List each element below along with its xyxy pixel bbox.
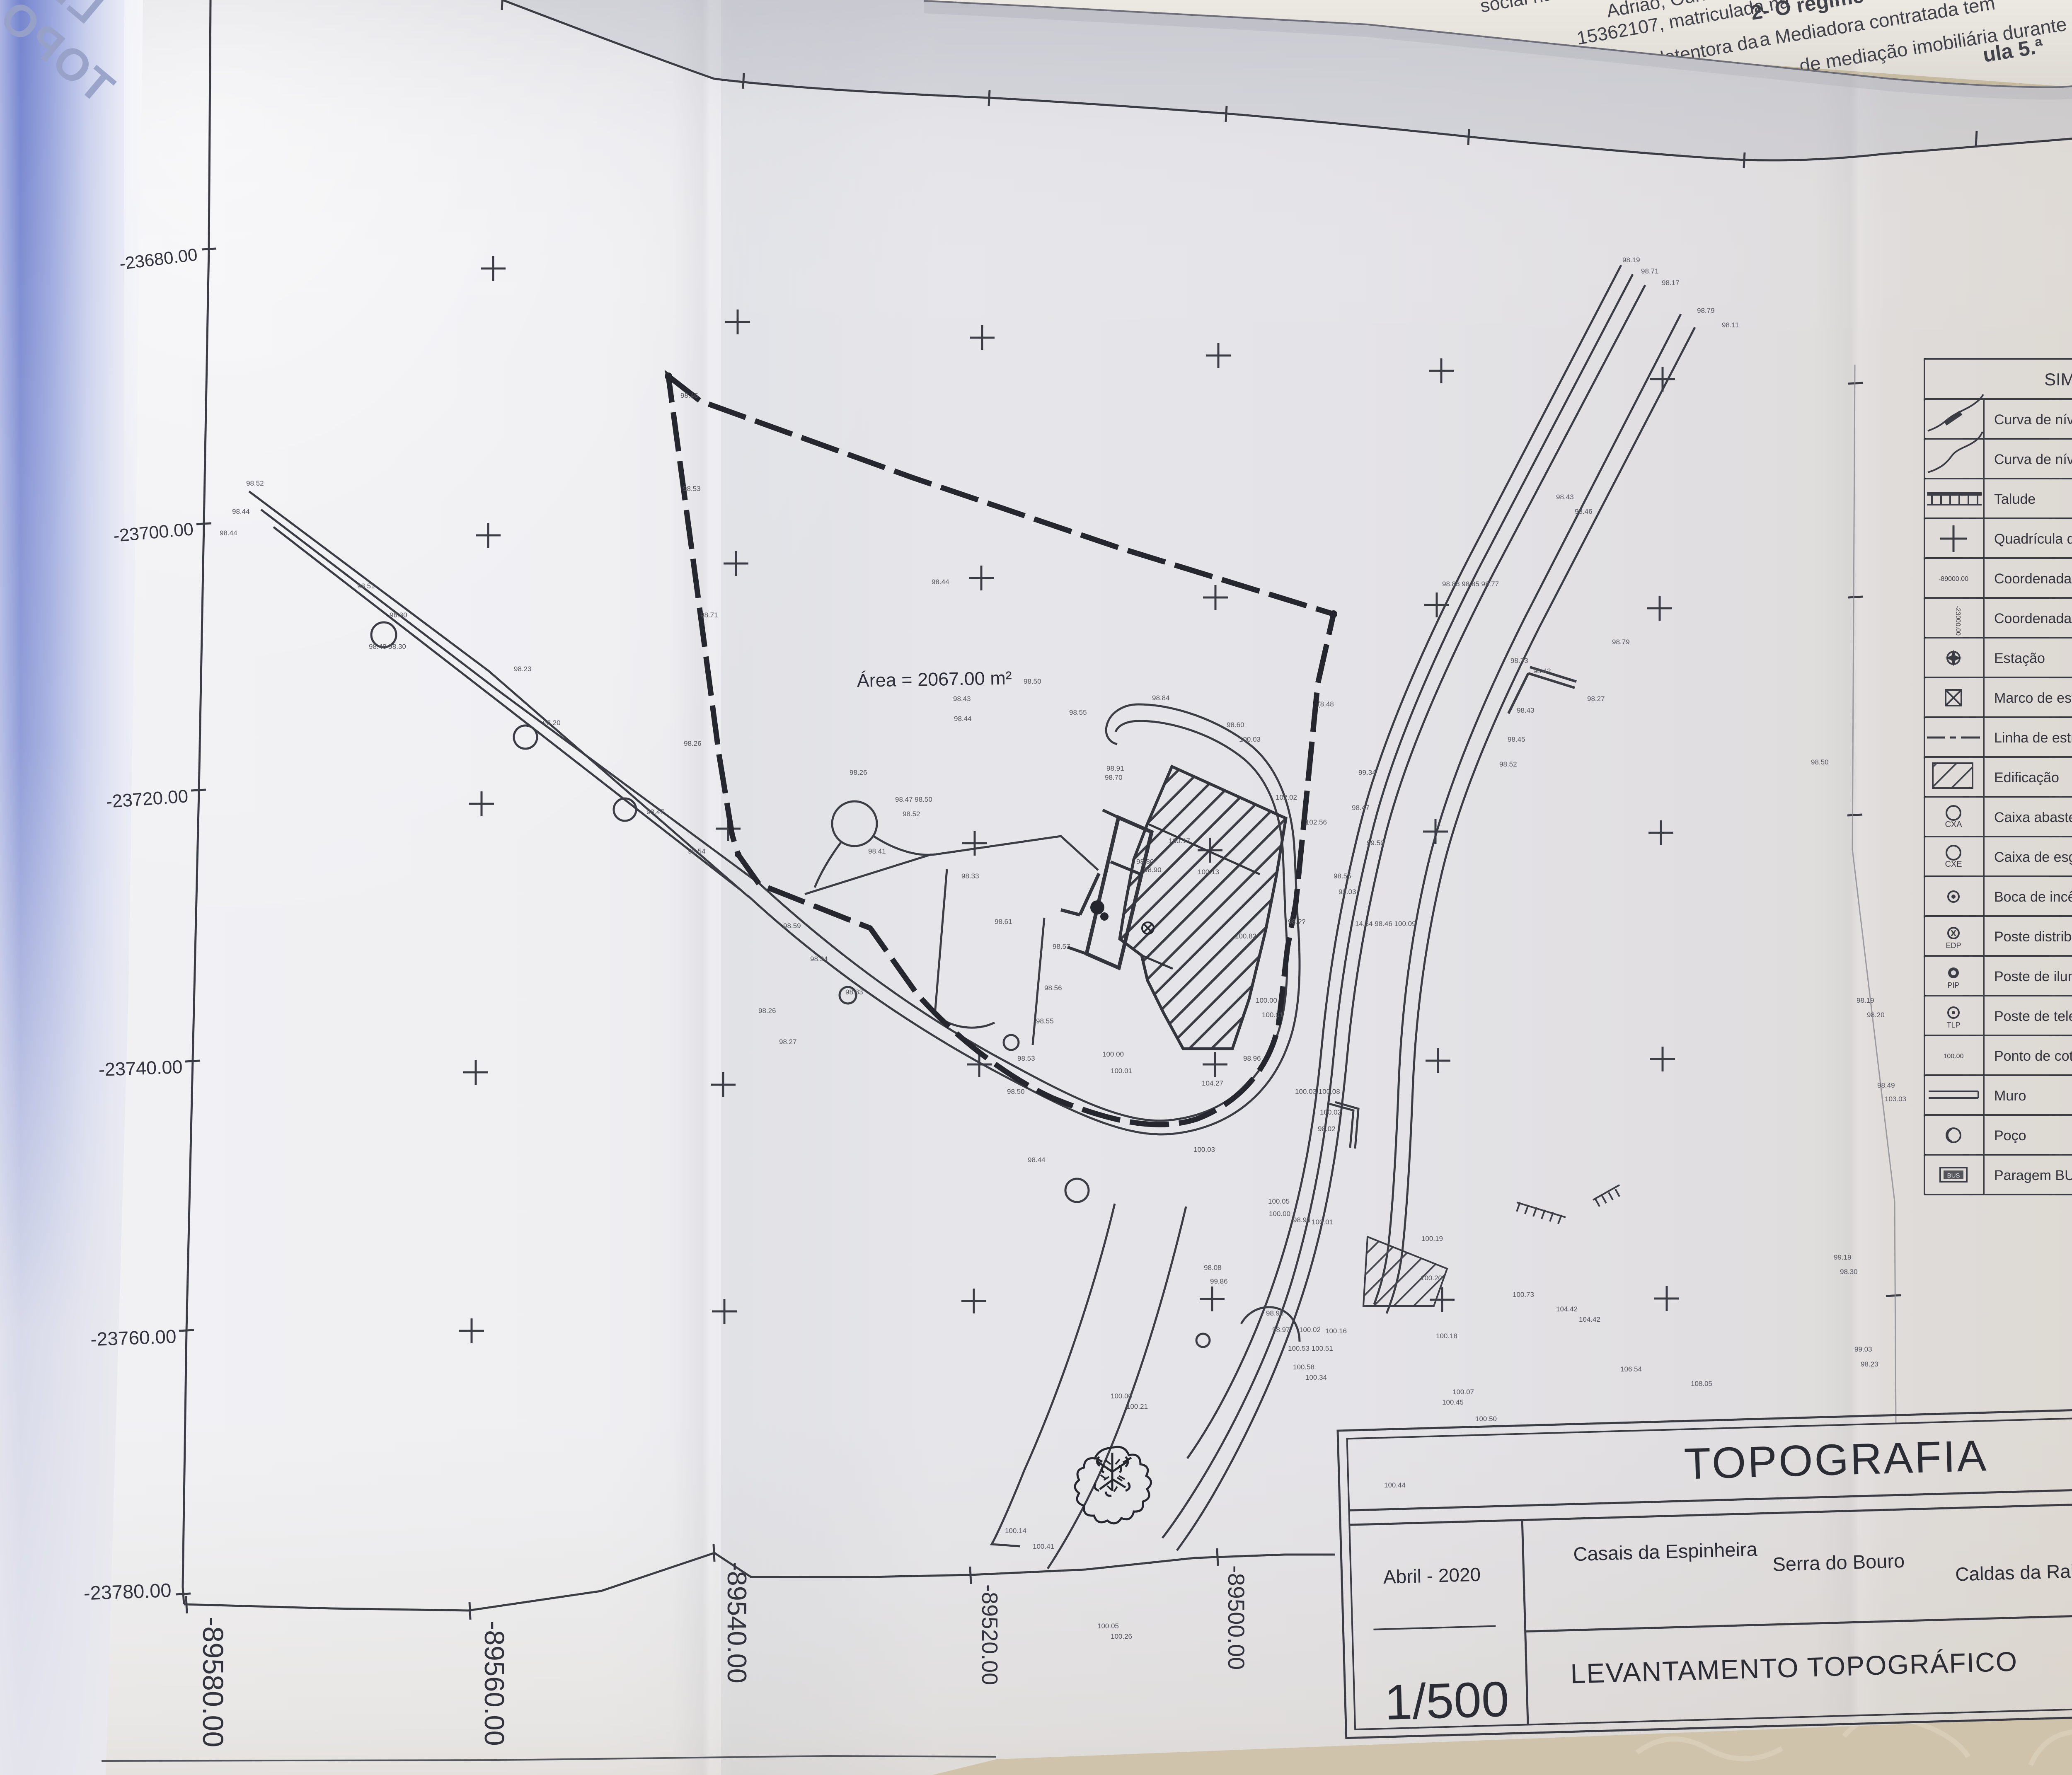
svg-text:98.43: 98.43 xyxy=(953,695,971,703)
svg-text:98.02: 98.02 xyxy=(1318,1125,1336,1133)
svg-text:100.26: 100.26 xyxy=(1111,1632,1132,1640)
svg-text:98.41: 98.41 xyxy=(868,847,886,855)
svg-text:98.43: 98.43 xyxy=(1517,706,1535,714)
svg-text:Muro: Muro xyxy=(1994,1088,2026,1104)
svg-text:CXE: CXE xyxy=(1945,860,1962,869)
svg-text:98.61: 98.61 xyxy=(995,918,1012,926)
svg-text:100.44: 100.44 xyxy=(1384,1481,1406,1489)
svg-text:-89000.00: -89000.00 xyxy=(1939,576,1968,583)
svg-text:Caldas da Rainha: Caldas da Rainha xyxy=(1955,1559,2072,1585)
svg-text:100.50: 100.50 xyxy=(1475,1415,1497,1423)
svg-text:Poste de iluminação: Poste de iluminação xyxy=(1994,969,2072,984)
svg-text:98.79: 98.79 xyxy=(1612,638,1630,646)
svg-text:104.42: 104.42 xyxy=(1556,1305,1578,1313)
svg-text:Curva de nível mestra com cota: Curva de nível mestra com cota xyxy=(1994,412,2072,428)
svg-text:98.33: 98.33 xyxy=(961,872,979,880)
svg-text:100.14: 100.14 xyxy=(1005,1527,1026,1535)
svg-text:-89560.00: -89560.00 xyxy=(479,1621,510,1746)
svg-text:Boca de incêndio: Boca de incêndio xyxy=(1994,889,2072,905)
svg-text:98.60: 98.60 xyxy=(1227,721,1244,729)
svg-text:100.34: 100.34 xyxy=(1305,1374,1327,1381)
svg-text:Paragem BUS: Paragem BUS xyxy=(1994,1168,2072,1183)
svg-text:98.83 98.85 98.77: 98.83 98.85 98.77 xyxy=(1442,580,1499,588)
svg-text:98.96: 98.96 xyxy=(1243,1054,1261,1062)
svg-text:100.73: 100.73 xyxy=(1513,1291,1534,1299)
svg-text:98.??: 98.?? xyxy=(1288,918,1306,926)
svg-text:99.19: 99.19 xyxy=(1834,1253,1852,1261)
svg-text:99.50: 99.50 xyxy=(1367,839,1385,847)
svg-text:(8.48: (8.48 xyxy=(1318,700,1334,708)
svg-text:PIP: PIP xyxy=(1947,981,1959,989)
svg-text:98.51: 98.51 xyxy=(357,582,375,590)
svg-text:104.27: 104.27 xyxy=(1202,1079,1223,1087)
svg-text:Edificação: Edificação xyxy=(1994,770,2059,786)
svg-text:98.44: 98.44 xyxy=(932,578,949,586)
svg-text:100.01: 100.01 xyxy=(1111,1067,1132,1075)
svg-text:EDP: EDP xyxy=(1946,941,1961,950)
svg-text:98.73: 98.73 xyxy=(1510,657,1528,665)
svg-text:98.45: 98.45 xyxy=(1508,735,1525,743)
svg-text:-89540.00: -89540.00 xyxy=(722,1562,752,1683)
svg-text:98.55: 98.55 xyxy=(1069,709,1087,716)
svg-text:98.47 98.50: 98.47 98.50 xyxy=(895,796,932,803)
svg-text:98.44: 98.44 xyxy=(232,508,250,515)
svg-text:98.47: 98.47 xyxy=(646,808,664,816)
svg-text:98.27: 98.27 xyxy=(1587,695,1605,703)
svg-text:1/500: 1/500 xyxy=(1384,1671,1510,1730)
svg-text:102.02: 102.02 xyxy=(1276,793,1297,801)
svg-text:98.79: 98.79 xyxy=(1697,307,1715,314)
svg-text:99.03: 99.03 xyxy=(1854,1345,1872,1353)
svg-text:98.44: 98.44 xyxy=(1028,1156,1046,1164)
svg-text:100.00: 100.00 xyxy=(1102,1050,1124,1058)
svg-text:99.86: 99.86 xyxy=(1210,1277,1228,1285)
svg-text:98.47: 98.47 xyxy=(1352,804,1370,812)
svg-text:99.03: 99.03 xyxy=(1339,888,1356,896)
svg-text:Marco de estrema de propriedad: Marco de estrema de propriedade xyxy=(1994,690,2072,706)
svg-text:100.20: 100.20 xyxy=(1421,1274,1442,1282)
svg-text:100.07: 100.07 xyxy=(1452,1388,1474,1396)
svg-text:98.70: 98.70 xyxy=(1105,774,1123,781)
svg-text:98.55: 98.55 xyxy=(1036,1017,1054,1025)
svg-text:100.17: 100.17 xyxy=(1169,837,1190,845)
svg-text:-23000.00: -23000.00 xyxy=(1954,606,1961,636)
svg-text:98.54: 98.54 xyxy=(688,847,706,855)
svg-text:98.20: 98.20 xyxy=(543,719,561,727)
svg-text:100.00: 100.00 xyxy=(1269,1210,1290,1218)
svg-text:98.84: 98.84 xyxy=(1152,694,1170,702)
svg-text:98.57: 98.57 xyxy=(1053,943,1070,950)
svg-text:98.56: 98.56 xyxy=(1044,984,1062,992)
svg-text:100.05: 100.05 xyxy=(1097,1622,1119,1630)
svg-text:103.03: 103.03 xyxy=(1885,1095,1906,1103)
svg-text:98.53: 98.53 xyxy=(683,485,701,493)
svg-text:98.33: 98.33 xyxy=(845,988,863,996)
svg-text:100.01: 100.01 xyxy=(1262,1011,1283,1019)
svg-text:98.23: 98.23 xyxy=(1861,1360,1878,1368)
svg-text:98.46: 98.46 xyxy=(680,392,698,399)
svg-text:100.19: 100.19 xyxy=(1421,1235,1443,1243)
svg-text:98.30: 98.30 xyxy=(1840,1268,1858,1276)
svg-text:98.19: 98.19 xyxy=(1622,256,1640,264)
svg-text:98.49: 98.49 xyxy=(1877,1081,1895,1089)
svg-text:98.71: 98.71 xyxy=(700,611,718,619)
svg-text:100.16: 100.16 xyxy=(1325,1327,1347,1335)
svg-text:Caixa de esgoto doméstico: Caixa de esgoto doméstico xyxy=(1994,849,2072,865)
svg-text:98.53: 98.53 xyxy=(1017,1054,1035,1062)
svg-text:98.30: 98.30 xyxy=(390,611,407,619)
svg-text:99.34: 99.34 xyxy=(1358,769,1376,776)
svg-text:100.00: 100.00 xyxy=(1256,996,1277,1004)
svg-text:Linha de estrema: Linha de estrema xyxy=(1994,730,2072,746)
svg-text:Poste de telecomunicações: Poste de telecomunicações xyxy=(1994,1008,2072,1024)
svg-text:100.02: 100.02 xyxy=(1299,1326,1321,1334)
svg-text:-89520.00: -89520.00 xyxy=(977,1584,1002,1685)
svg-text:98.97: 98.97 xyxy=(1272,1326,1290,1334)
svg-text:98.44: 98.44 xyxy=(220,529,237,537)
svg-text:-23740.00: -23740.00 xyxy=(98,1056,183,1080)
svg-text:98.20: 98.20 xyxy=(1867,1011,1885,1019)
svg-text:Quadrícula de coordenação: Quadrícula de coordenação xyxy=(1994,531,2072,547)
svg-text:98.23: 98.23 xyxy=(514,665,532,673)
svg-text:100.58: 100.58 xyxy=(1293,1363,1314,1371)
svg-text:98.27: 98.27 xyxy=(779,1038,797,1046)
svg-text:-23780.00: -23780.00 xyxy=(83,1579,172,1604)
svg-text:98.40 98.30: 98.40 98.30 xyxy=(369,643,406,651)
svg-text:98.46: 98.46 xyxy=(1575,508,1593,515)
svg-text:Curva de nível secundária: Curva de nível secundária xyxy=(1994,452,2072,467)
svg-text:98.80: 98.80 xyxy=(1136,858,1154,866)
svg-text:Poço: Poço xyxy=(1994,1128,2026,1144)
svg-text:98.42: 98.42 xyxy=(1533,667,1551,675)
svg-text:98.26: 98.26 xyxy=(850,769,867,776)
svg-text:98.91: 98.91 xyxy=(1106,764,1124,772)
svg-text:100.05: 100.05 xyxy=(1268,1197,1290,1205)
svg-text:100.03 100.08: 100.03 100.08 xyxy=(1295,1088,1340,1095)
svg-text:-23760.00: -23760.00 xyxy=(90,1325,177,1350)
svg-text:Poste distribuição EDP: Poste distribuição EDP xyxy=(1994,929,2072,945)
svg-text:14.34 98.46 100.09: 14.34 98.46 100.09 xyxy=(1355,920,1416,928)
svg-text:Abril - 2020: Abril - 2020 xyxy=(1383,1564,1481,1588)
svg-text:98.26: 98.26 xyxy=(684,740,702,747)
svg-text:Coordenada m: Coordenada m xyxy=(1994,611,2072,626)
svg-text:98.71: 98.71 xyxy=(1641,267,1659,275)
svg-text:CXA: CXA xyxy=(1945,820,1962,829)
svg-text:TLP: TLP xyxy=(1946,1021,1960,1029)
svg-text:100.18: 100.18 xyxy=(1436,1332,1457,1340)
svg-text:98.94: 98.94 xyxy=(1293,1216,1311,1224)
svg-text:Coordenada p: Coordenada p xyxy=(1994,571,2072,587)
svg-text:98.50: 98.50 xyxy=(1024,677,1041,685)
svg-text:98.50: 98.50 xyxy=(1811,758,1829,766)
svg-text:Talude: Talude xyxy=(1994,491,2036,507)
svg-text:-89580.00: -89580.00 xyxy=(197,1617,229,1747)
svg-text:SIMBOLOGIA: SIMBOLOGIA xyxy=(2044,370,2072,389)
svg-text:100.53 100.51: 100.53 100.51 xyxy=(1288,1345,1333,1352)
svg-text:100.45: 100.45 xyxy=(1442,1398,1464,1406)
svg-text:108.05: 108.05 xyxy=(1691,1380,1712,1388)
svg-text:100.02: 100.02 xyxy=(1320,1108,1341,1116)
svg-text:BUS: BUS xyxy=(1947,1172,1960,1179)
svg-text:98.26: 98.26 xyxy=(758,1007,776,1015)
svg-text:98.59: 98.59 xyxy=(783,922,801,930)
svg-text:100.03: 100.03 xyxy=(1193,1146,1215,1154)
svg-text:Caixa abastecimento de água: Caixa abastecimento de água xyxy=(1994,810,2072,825)
svg-text:98.08: 98.08 xyxy=(1204,1264,1222,1272)
svg-text:98.52: 98.52 xyxy=(903,810,920,818)
svg-text:Área = 2067.00 m²: Área = 2067.00 m² xyxy=(857,667,1012,691)
svg-text:98.43: 98.43 xyxy=(1556,493,1574,501)
svg-text:100.41: 100.41 xyxy=(1033,1543,1054,1550)
svg-text:100.82: 100.82 xyxy=(1235,932,1256,940)
svg-text:104.42: 104.42 xyxy=(1579,1316,1600,1323)
svg-text:98.50: 98.50 xyxy=(1007,1088,1025,1095)
svg-text:100.21: 100.21 xyxy=(1126,1403,1148,1410)
svg-text:98.11: 98.11 xyxy=(1722,321,1739,329)
svg-text:98.19: 98.19 xyxy=(1857,996,1874,1004)
svg-text:Ponto de cota: Ponto de cota xyxy=(1994,1048,2072,1064)
svg-text:Serra do Bouro: Serra do Bouro xyxy=(1772,1550,1905,1575)
svg-text:100.00: 100.00 xyxy=(1944,1053,1964,1060)
svg-text:100.13: 100.13 xyxy=(1198,868,1219,876)
svg-text:TOPOGRAFIA: TOPOGRAFIA xyxy=(1683,1431,1988,1488)
svg-text:100.00: 100.00 xyxy=(1111,1392,1132,1400)
svg-text:100.01: 100.01 xyxy=(1312,1218,1333,1226)
svg-text:102.56: 102.56 xyxy=(1305,818,1327,826)
svg-text:98.55: 98.55 xyxy=(1334,872,1351,880)
svg-text:98.17: 98.17 xyxy=(1662,279,1680,287)
svg-text:98.44: 98.44 xyxy=(954,715,972,723)
svg-text:98.90: 98.90 xyxy=(1144,866,1162,874)
svg-text:Estação: Estação xyxy=(1994,651,2045,666)
svg-text:-89500.00: -89500.00 xyxy=(1223,1565,1249,1670)
svg-text:98.52: 98.52 xyxy=(1499,760,1517,768)
svg-text:98.52: 98.52 xyxy=(246,479,264,487)
svg-text:98.34: 98.34 xyxy=(810,955,828,963)
svg-text:106.54: 106.54 xyxy=(1620,1365,1642,1373)
svg-text:98.98: 98.98 xyxy=(1266,1309,1284,1317)
svg-text:100.03: 100.03 xyxy=(1239,735,1261,743)
